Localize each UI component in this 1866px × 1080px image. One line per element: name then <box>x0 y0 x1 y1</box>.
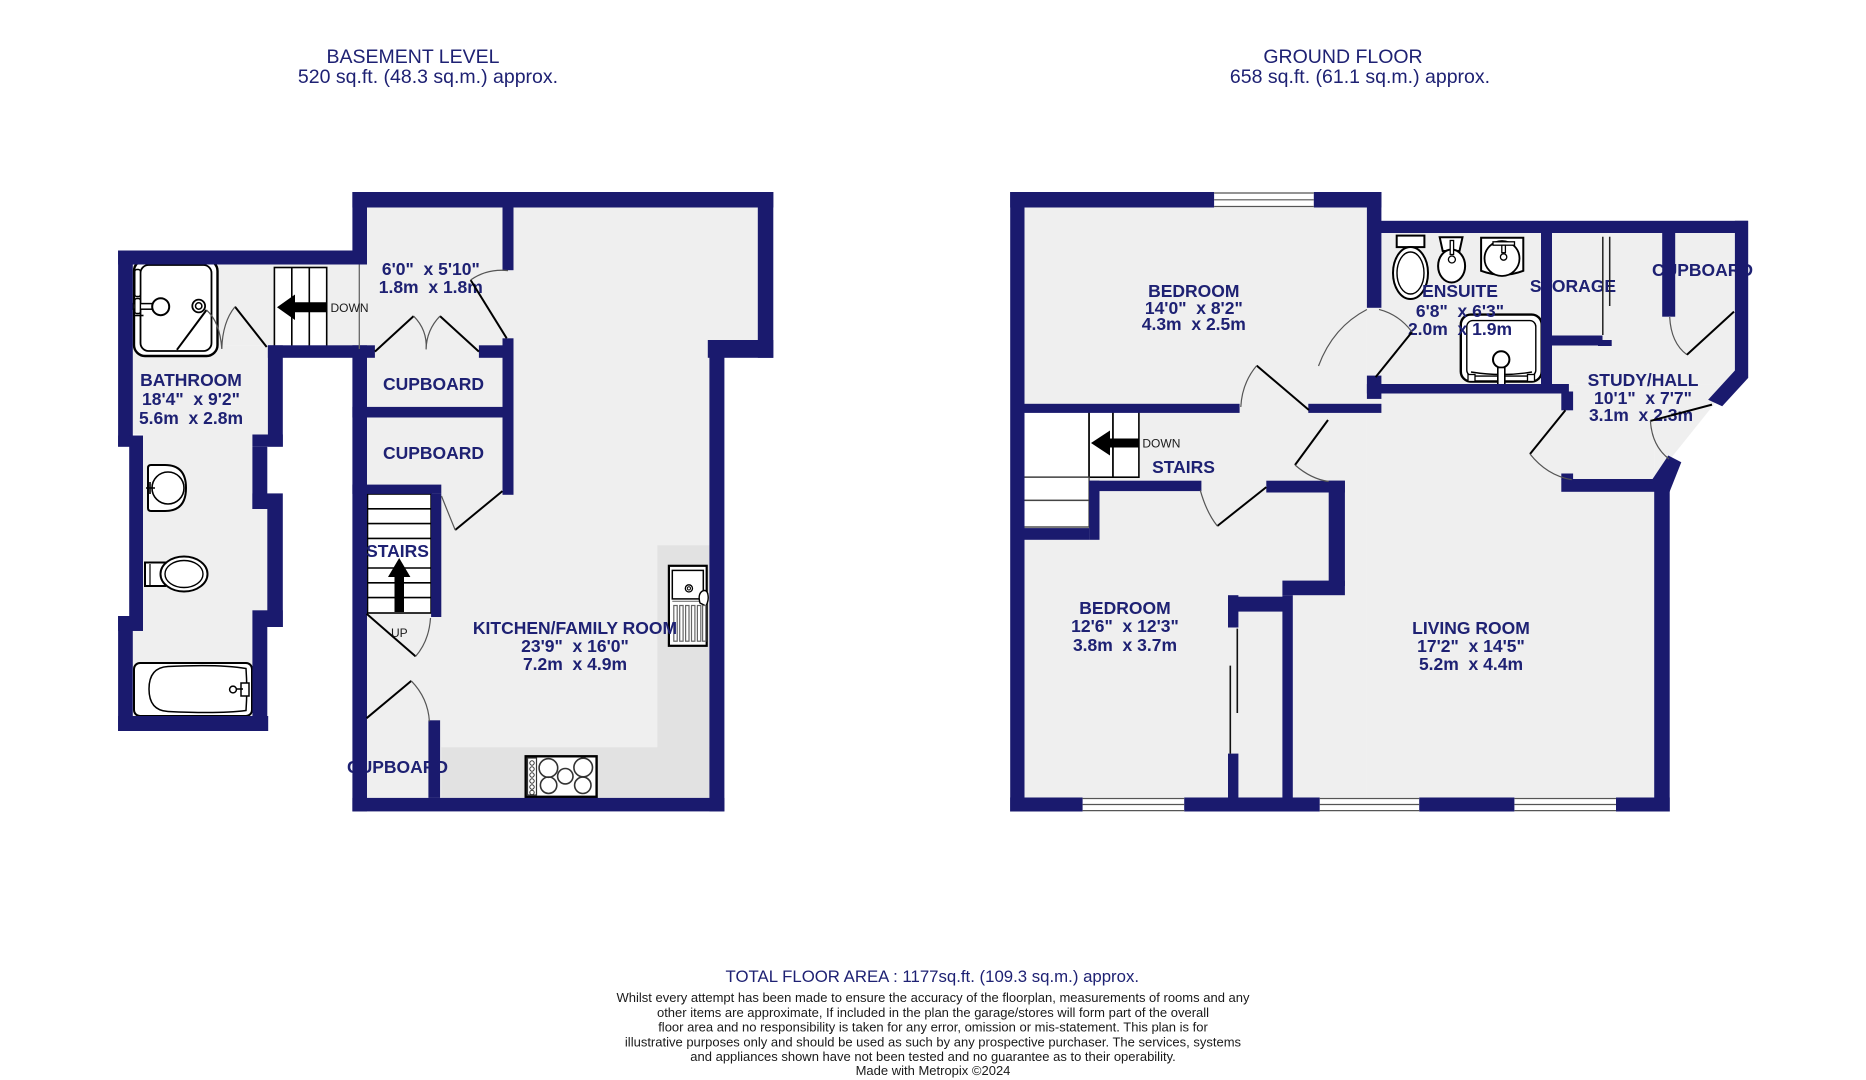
svg-text:658 sq.ft. (61.1 sq.m.) approx: 658 sq.ft. (61.1 sq.m.) approx. <box>1230 66 1490 88</box>
svg-text:STUDY/HALL: STUDY/HALL <box>1588 370 1699 390</box>
svg-text:ENSUITE: ENSUITE <box>1422 281 1498 301</box>
svg-text:3.1m x 2.3m: 3.1m x 2.3m <box>1589 405 1693 425</box>
svg-text:17'2" x 14'5": 17'2" x 14'5" <box>1417 636 1525 656</box>
svg-text:6'8" x 6'3": 6'8" x 6'3" <box>1416 301 1504 321</box>
svg-text:5.6m x 2.8m: 5.6m x 2.8m <box>139 408 243 428</box>
svg-text:CUPBOARD: CUPBOARD <box>383 443 484 463</box>
svg-text:1.8m x 1.8m: 1.8m x 1.8m <box>379 277 483 297</box>
svg-text:5.2m x 4.4m: 5.2m x 4.4m <box>1419 654 1523 674</box>
svg-text:18'4" x 9'2": 18'4" x 9'2" <box>142 389 240 409</box>
svg-text:STAIRS: STAIRS <box>1152 457 1215 477</box>
svg-text:6'0" x 5'10": 6'0" x 5'10" <box>382 259 480 279</box>
svg-text:Whilst every attempt has been: Whilst every attempt has been made to en… <box>617 990 1250 1005</box>
svg-text:floor area and no responsibili: floor area and no responsibility is take… <box>658 1020 1208 1035</box>
svg-text:TOTAL FLOOR AREA : 1177sq.ft.: TOTAL FLOOR AREA : 1177sq.ft. (109.3 sq.… <box>726 967 1140 986</box>
svg-text:7.2m x 4.9m: 7.2m x 4.9m <box>523 654 627 674</box>
svg-text:23'9" x 16'0": 23'9" x 16'0" <box>521 636 629 656</box>
svg-text:and appliances shown have not: and appliances shown have not been teste… <box>690 1049 1175 1064</box>
svg-text:LIVING ROOM: LIVING ROOM <box>1412 618 1530 638</box>
svg-text:other items are approximate, I: other items are approximate, If included… <box>657 1005 1209 1020</box>
svg-text:KITCHEN/FAMILY ROOM: KITCHEN/FAMILY ROOM <box>473 618 677 638</box>
svg-text:2.0m x 1.9m: 2.0m x 1.9m <box>1408 319 1512 339</box>
svg-text:STAIRS: STAIRS <box>366 541 429 561</box>
svg-text:12'6" x 12'3": 12'6" x 12'3" <box>1071 616 1179 636</box>
svg-text:GROUND FLOOR: GROUND FLOOR <box>1263 46 1422 68</box>
svg-text:Made with Metropix ©2024: Made with Metropix ©2024 <box>856 1063 1011 1078</box>
svg-text:520 sq.ft. (48.3 sq.m.) approx: 520 sq.ft. (48.3 sq.m.) approx. <box>298 66 558 88</box>
svg-text:BEDROOM: BEDROOM <box>1079 598 1170 618</box>
svg-text:DOWN: DOWN <box>1142 437 1180 451</box>
svg-text:BATHROOM: BATHROOM <box>140 370 242 390</box>
svg-text:3.8m x 3.7m: 3.8m x 3.7m <box>1073 635 1177 655</box>
svg-text:UP: UP <box>391 626 408 640</box>
svg-text:4.3m x 2.5m: 4.3m x 2.5m <box>1142 314 1246 334</box>
svg-text:BASEMENT LEVEL: BASEMENT LEVEL <box>326 46 499 68</box>
svg-text:illustrative purposes only and: illustrative purposes only and should be… <box>625 1035 1242 1050</box>
svg-text:DOWN: DOWN <box>331 301 369 315</box>
svg-text:CUPBOARD: CUPBOARD <box>383 374 484 394</box>
